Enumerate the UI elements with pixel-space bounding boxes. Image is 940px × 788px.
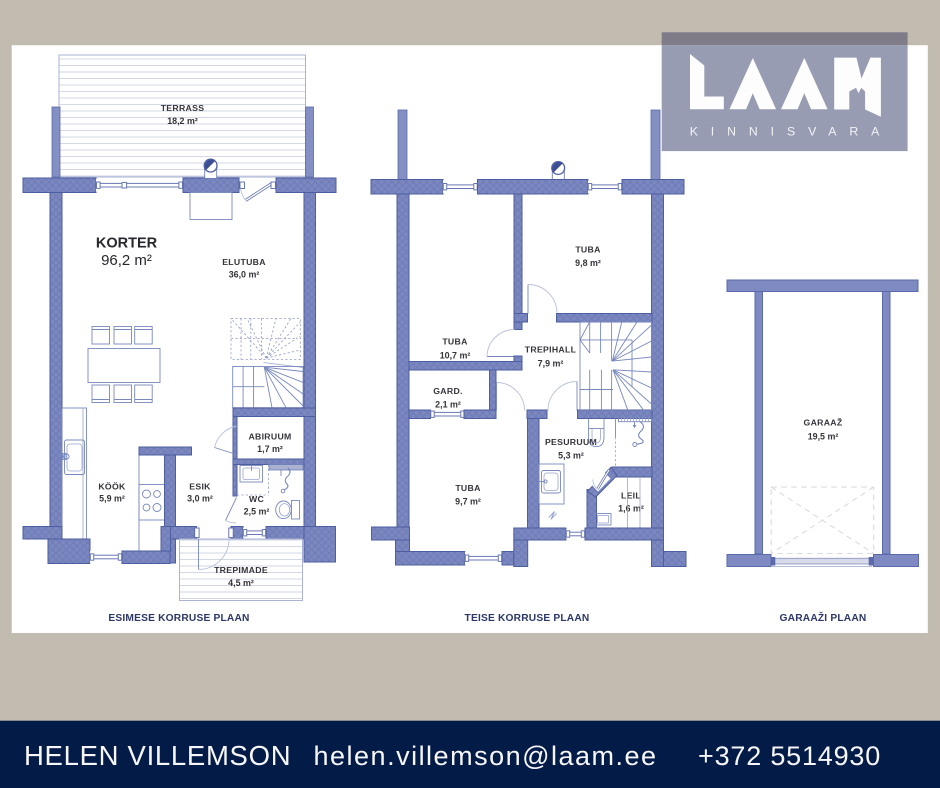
svg-text:7,9 m²: 7,9 m² [538,359,564,369]
svg-text:1,7 m²: 1,7 m² [257,444,283,454]
svg-text:helen.villemson@laam.ee: helen.villemson@laam.ee [314,741,658,771]
svg-text:GARAAŽI PLAAN: GARAAŽI PLAAN [780,611,867,624]
svg-text:TUBA: TUBA [455,483,481,493]
svg-text:4,5 m²: 4,5 m² [228,578,254,588]
svg-text:9,8 m²: 9,8 m² [575,258,601,268]
svg-text:2,1 m²: 2,1 m² [435,400,461,410]
svg-text:TREPIMADE: TREPIMADE [214,565,268,575]
svg-text:HELEN VILLEMSON: HELEN VILLEMSON [24,740,291,771]
svg-text:KINNISVARA: KINNISVARA [690,124,893,138]
svg-text:19,5 m²: 19,5 m² [808,432,839,442]
svg-text:TUBA: TUBA [575,245,601,255]
svg-text:5,3 m²: 5,3 m² [558,451,584,461]
svg-text:5,9 m²: 5,9 m² [99,494,125,504]
svg-text:2,5 m²: 2,5 m² [244,507,270,517]
svg-text:18,2 m²: 18,2 m² [167,116,198,126]
svg-text:KÖÖK: KÖÖK [98,482,126,492]
svg-text:36,0 m²: 36,0 m² [229,270,260,280]
svg-text:GARD.: GARD. [433,386,463,396]
svg-text:TERRASS: TERRASS [161,103,205,113]
svg-text:96,2 m²: 96,2 m² [101,252,152,269]
svg-text:+372 5514930: +372 5514930 [698,741,881,771]
svg-text:TUBA: TUBA [442,337,468,347]
svg-text:TREPIHALL: TREPIHALL [525,345,577,355]
svg-text:WC: WC [249,494,264,504]
svg-text:LEIL: LEIL [621,491,641,501]
svg-text:9,7 m²: 9,7 m² [455,497,481,507]
svg-text:GARAAŽ: GARAAŽ [804,417,843,428]
svg-text:10,7 m²: 10,7 m² [440,351,471,361]
svg-text:3,0 m²: 3,0 m² [187,494,213,504]
svg-text:TEISE KORRUSE PLAAN: TEISE KORRUSE PLAAN [465,613,590,624]
svg-text:ELUTUBA: ELUTUBA [222,257,266,267]
svg-text:KORTER: KORTER [96,236,158,252]
svg-text:ESIK: ESIK [189,482,211,492]
svg-text:ESIMESE KORRUSE PLAAN: ESIMESE KORRUSE PLAAN [108,613,249,624]
svg-text:ABIRUUM: ABIRUUM [248,432,291,442]
